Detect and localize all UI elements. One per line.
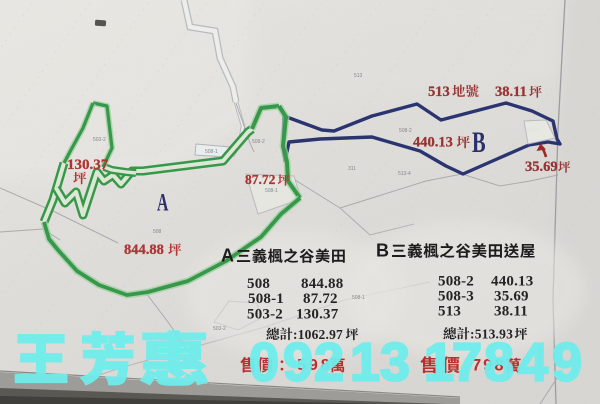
svg-text:35.69: 35.69: [525, 159, 558, 175]
svg-text:311: 311: [348, 166, 356, 172]
svg-text:B: B: [472, 125, 486, 159]
svg-text:38.11: 38.11: [494, 304, 528, 320]
svg-text:508: 508: [247, 276, 270, 292]
svg-text:513: 513: [354, 73, 363, 79]
svg-text:844.88: 844.88: [124, 242, 164, 258]
svg-text:508-3: 508-3: [438, 289, 474, 305]
svg-text:508-2: 508-2: [438, 274, 474, 290]
svg-text:513: 513: [438, 304, 461, 320]
svg-text:130.37: 130.37: [296, 307, 339, 323]
svg-text:A: A: [157, 188, 168, 217]
svg-text:508-1: 508-1: [248, 291, 284, 307]
svg-text:513-4: 513-4: [398, 171, 411, 177]
svg-text:440.13: 440.13: [491, 274, 533, 290]
svg-text:87.72: 87.72: [303, 291, 338, 307]
svg-text:844.88: 844.88: [301, 276, 343, 292]
svg-text:503-2: 503-2: [247, 307, 283, 323]
svg-text:503-2: 503-2: [93, 137, 106, 143]
svg-text:87.72: 87.72: [245, 172, 276, 187]
svg-text:508-2: 508-2: [252, 139, 265, 145]
svg-text:A: A: [221, 246, 234, 266]
svg-text:508-2: 508-2: [399, 128, 412, 134]
svg-text:508-1: 508-1: [205, 149, 218, 155]
svg-text:38.11: 38.11: [495, 84, 527, 100]
svg-text:35.69: 35.69: [494, 289, 529, 305]
svg-text:130.37: 130.37: [67, 157, 109, 173]
svg-text:508-1: 508-1: [265, 188, 278, 194]
svg-text:503-2: 503-2: [213, 326, 226, 332]
svg-text:B: B: [376, 241, 389, 261]
svg-text:508: 508: [153, 229, 162, 235]
svg-text:513: 513: [428, 84, 450, 100]
svg-text:508-1: 508-1: [352, 295, 365, 301]
svg-text:440.13: 440.13: [413, 135, 453, 151]
